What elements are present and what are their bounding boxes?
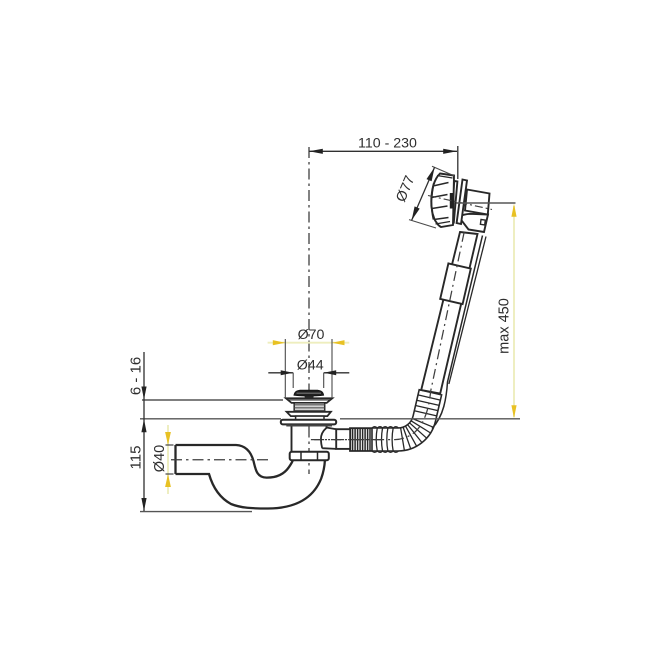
svg-text:Ø44: Ø44: [297, 357, 324, 373]
svg-text:110 - 230: 110 - 230: [358, 136, 417, 152]
svg-text:115: 115: [128, 446, 145, 470]
svg-text:Ø40: Ø40: [152, 445, 168, 472]
svg-text:Ø70: Ø70: [298, 327, 325, 343]
svg-text:max 450: max 450: [497, 298, 513, 354]
svg-text:6 - 16: 6 - 16: [128, 357, 145, 395]
